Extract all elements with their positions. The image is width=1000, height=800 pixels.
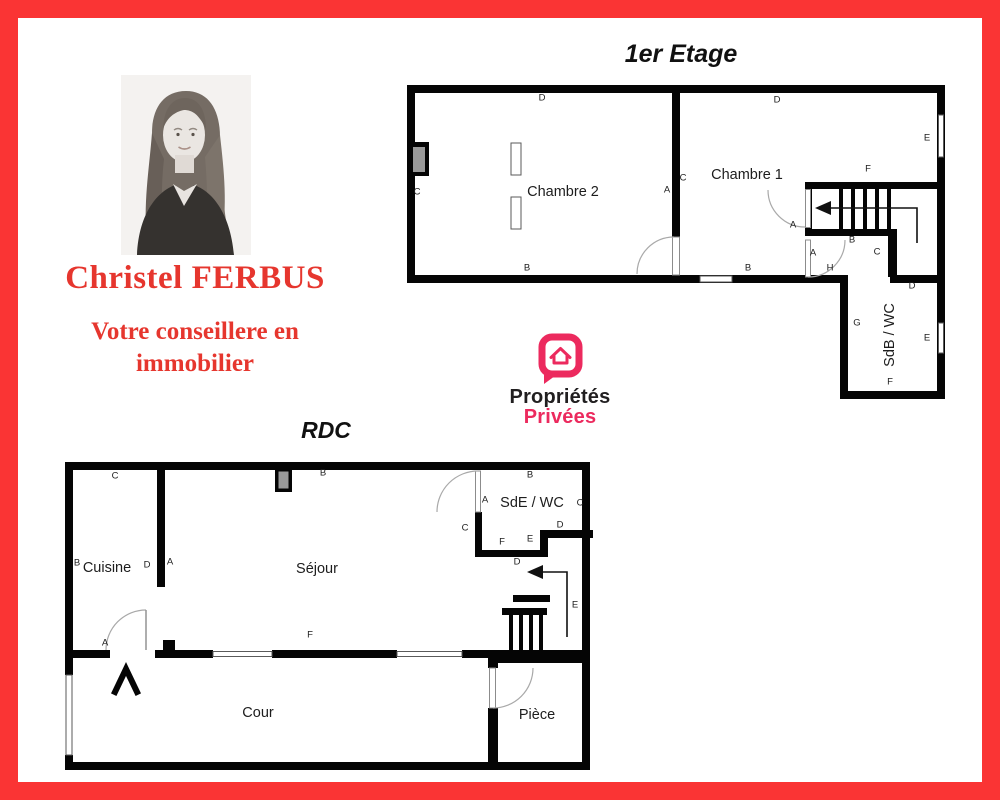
rdc-stairs	[502, 565, 567, 650]
logo-word-2: Privées	[458, 407, 662, 428]
stairs-arrow-icon	[527, 565, 543, 579]
stairs-direction-line	[541, 572, 567, 637]
floor1-title: 1er Etage	[561, 40, 801, 69]
rdc-plan-drawing	[63, 460, 593, 772]
agent-tagline: Votre conseillere en immobilier	[25, 316, 365, 380]
rdc-title: RDC	[241, 417, 411, 444]
rdc-windows	[66, 472, 462, 756]
rdc-doors	[106, 471, 533, 708]
brand-logo: Propriétés Privées	[458, 333, 662, 428]
woman-portrait-icon	[121, 75, 251, 255]
entrance-chevron-icon	[115, 669, 137, 692]
rdc-walls	[65, 462, 593, 770]
rdc-plan: CBDABFABACDEFCDECuisineSéjourSdE / WCCou…	[63, 460, 593, 772]
agent-tagline-line1: Votre conseillere en	[25, 316, 365, 348]
agent-tagline-line2: immobilier	[25, 348, 365, 380]
agent-name: Christel FERBUS	[25, 260, 365, 297]
agent-photo	[121, 75, 251, 255]
logo-word-1: Propriétés	[458, 387, 662, 407]
house-speech-bubble-icon	[537, 333, 583, 385]
stairs-arrow-icon	[815, 201, 831, 215]
